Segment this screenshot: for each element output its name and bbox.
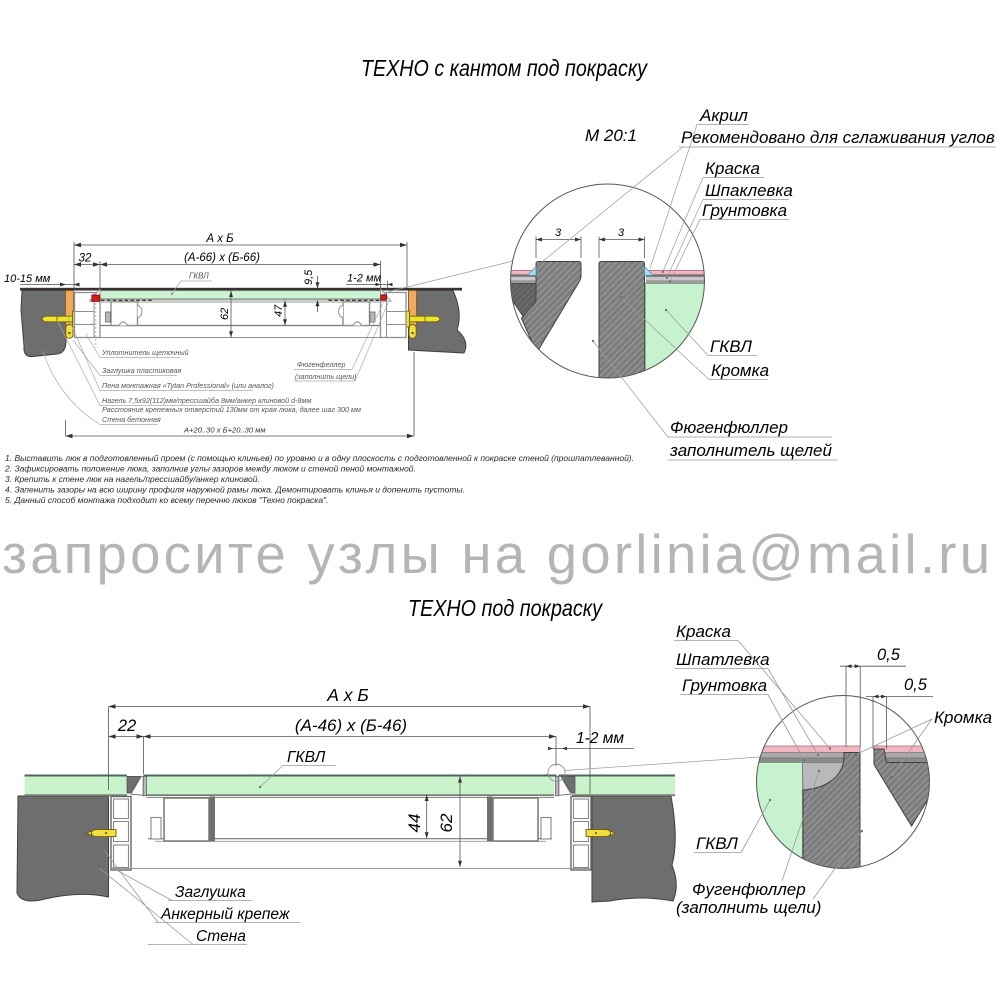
svg-text:Заглушка пластиковая: Заглушка пластиковая [102, 366, 181, 375]
svg-text:62: 62 [219, 308, 231, 320]
svg-text:3: 3 [618, 227, 625, 239]
svg-text:Акрил: Акрил [699, 106, 748, 125]
svg-text:22: 22 [117, 717, 136, 735]
svg-text:А х Б: А х Б [326, 685, 369, 705]
svg-text:ГКВЛ: ГКВЛ [696, 834, 738, 853]
svg-text:ГКВЛ: ГКВЛ [189, 272, 209, 281]
svg-text:ТЕХНО под покраску: ТЕХНО под покраску [408, 595, 603, 621]
svg-text:9,5: 9,5 [303, 269, 315, 285]
svg-text:Шпатлевка: Шпатлевка [676, 650, 770, 669]
svg-text:5. Данный способ монтажа подхо: 5. Данный способ монтажа подходит ко все… [5, 495, 328, 505]
svg-text:(заполнить щели): (заполнить щели) [676, 898, 821, 917]
svg-text:А х Б: А х Б [205, 233, 234, 245]
svg-text:Кромка: Кромка [711, 361, 769, 380]
svg-text:запросите узлы на gorlinia@mai: запросите узлы на gorlinia@mail.ru [2, 524, 990, 585]
svg-text:1. Выставить люк в подготовлен: 1. Выставить люк в подготовленный проем … [5, 453, 634, 463]
svg-text:(заполнить щели): (заполнить щели) [295, 372, 356, 381]
svg-text:Расстояние крепежных отверстий: Расстояние крепежных отверстий 130мм от … [102, 405, 361, 414]
svg-text:0,5: 0,5 [877, 646, 901, 664]
svg-text:Нагель 7,5х92(112)мм/прессшай: Нагель 7,5х92(112)мм/прессшайба 8мм/анке… [102, 396, 311, 405]
svg-text:(А-46) х (Б-46): (А-46) х (Б-46) [295, 716, 407, 735]
svg-text:Кромка: Кромка [934, 708, 992, 727]
svg-text:ТЕХНО с кантом под покраску: ТЕХНО с кантом под покраску [361, 55, 648, 81]
svg-text:62: 62 [437, 813, 456, 832]
svg-text:ГКВЛ: ГКВЛ [287, 749, 326, 766]
svg-text:10-15 мм: 10-15 мм [4, 273, 51, 285]
svg-text:4. Запенить зазоры на всю шири: 4. Запенить зазоры на всю ширину профиля… [5, 485, 465, 495]
svg-text:заполнитель щелей: заполнитель щелей [669, 441, 833, 460]
svg-text:Уплотнитель щеточный: Уплотнитель щеточный [101, 348, 189, 357]
svg-text:Стена бетонная: Стена бетонная [102, 415, 161, 424]
svg-text:Пена монтажная «Tytan Professi: Пена монтажная «Tytan Professional» (или… [102, 381, 274, 390]
svg-text:ГКВЛ: ГКВЛ [710, 337, 752, 356]
svg-text:А+20..30 х Б+20..30 мм: А+20..30 х Б+20..30 мм [183, 426, 266, 435]
svg-text:Заглушка: Заглушка [175, 884, 246, 901]
svg-text:Краска: Краска [705, 159, 760, 178]
svg-text:0,5: 0,5 [904, 676, 928, 694]
svg-text:2. Зафиксировать положение люк: 2. Зафиксировать положение люка, заполни… [4, 464, 416, 474]
svg-text:Стена: Стена [196, 928, 246, 945]
svg-text:Фюгенфеллер: Фюгенфеллер [297, 360, 345, 369]
svg-text:1-2 мм: 1-2 мм [347, 273, 381, 285]
svg-text:Фюгенфюллер: Фюгенфюллер [670, 418, 788, 437]
svg-text:Грунтовка: Грунтовка [702, 201, 787, 220]
svg-text:32: 32 [79, 253, 92, 265]
svg-text:Рекомендовано для сглаживания: Рекомендовано для сглаживания углов [681, 128, 995, 147]
svg-text:1-2 мм: 1-2 мм [576, 730, 624, 747]
svg-text:Краска: Краска [676, 622, 731, 641]
svg-text:Шпаклевка: Шпаклевка [705, 181, 793, 200]
svg-text:3: 3 [555, 227, 562, 239]
svg-text:3. Крепить к стене люк на наге: 3. Крепить к стене люк на нагель/прессша… [5, 474, 260, 484]
svg-text:44: 44 [405, 814, 424, 833]
svg-text:Грунтовка: Грунтовка [682, 676, 767, 695]
svg-text:М 20:1: М 20:1 [585, 126, 637, 145]
svg-text:(А-66) х (Б-66): (А-66) х (Б-66) [184, 252, 260, 264]
svg-text:Фугенфюллер: Фугенфюллер [692, 880, 806, 899]
svg-text:Анкерный крепеж: Анкерный крепеж [160, 906, 291, 923]
svg-text:47: 47 [273, 304, 285, 317]
